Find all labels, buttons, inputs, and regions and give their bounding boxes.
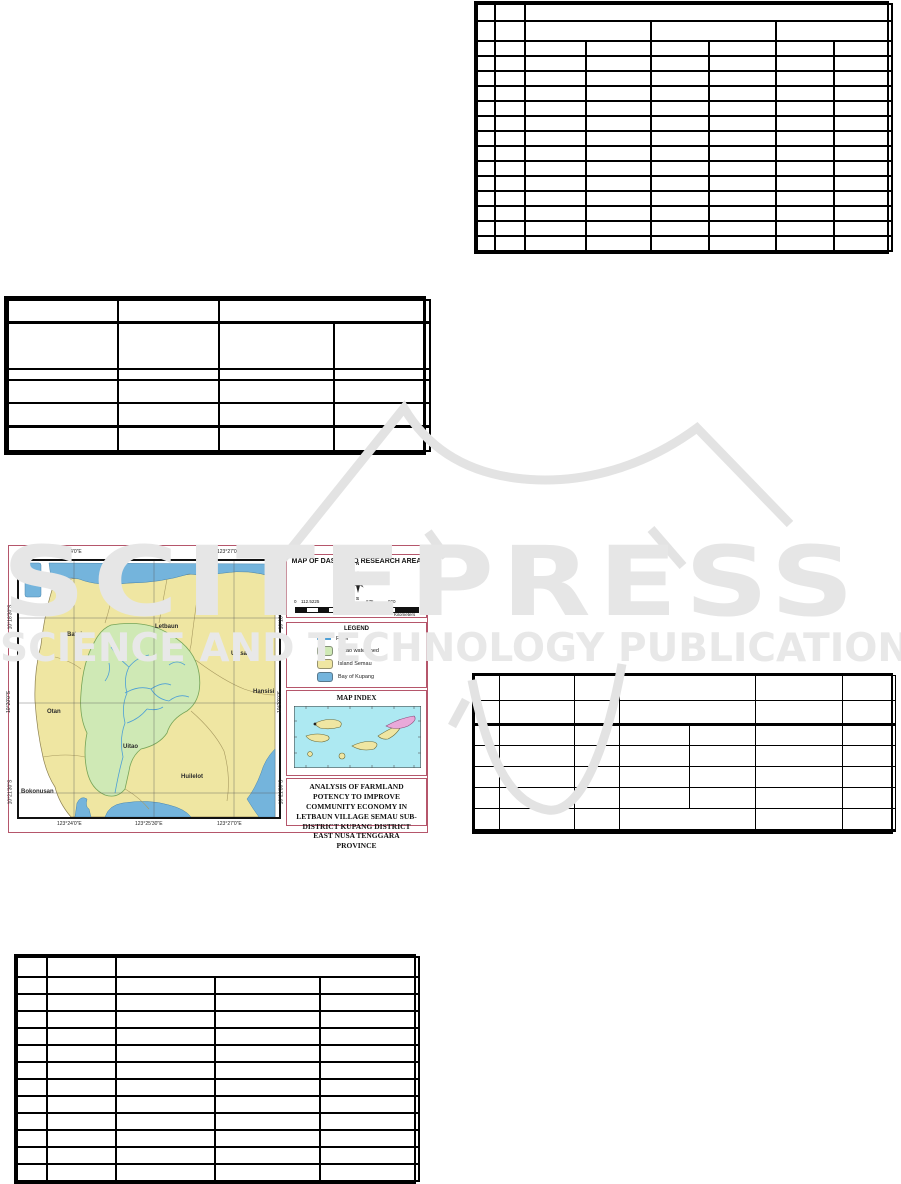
scale-label: 450	[343, 599, 351, 604]
empty-cell	[215, 1045, 320, 1062]
empty-cell	[116, 957, 419, 977]
empty-cell	[17, 1011, 47, 1028]
legend-label: River	[336, 636, 349, 642]
empty-cell	[475, 725, 500, 746]
empty-cell	[525, 116, 586, 131]
empty-cell	[709, 176, 776, 191]
empty-cell	[586, 56, 651, 71]
map-index-panel: MAP INDEX	[286, 690, 427, 776]
empty-cell	[215, 977, 320, 994]
empty-cell	[320, 994, 419, 1011]
empty-cell	[776, 71, 834, 86]
empty-cell	[651, 176, 709, 191]
empty-cell	[219, 300, 430, 322]
empty-cell	[776, 146, 834, 161]
empty-cell	[47, 1079, 116, 1096]
empty-cell	[118, 369, 219, 380]
empty-cell	[651, 71, 709, 86]
empty-cell	[620, 676, 756, 701]
empty-cell	[709, 191, 776, 206]
lon-label-bottom: 123°27'0"E	[217, 821, 242, 827]
lon-label-bottom: 123°25'30"E	[135, 821, 163, 827]
empty-cell	[834, 191, 892, 206]
empty-cell	[320, 1079, 419, 1096]
legend-item-river: River	[317, 635, 426, 643]
empty-cell	[477, 146, 495, 161]
compass-e: E	[373, 579, 376, 584]
empty-cell	[525, 4, 892, 21]
empty-cell	[620, 767, 690, 788]
scale-label: 112.5225	[301, 599, 319, 604]
empty-cell	[477, 71, 495, 86]
bay-west-patch	[25, 563, 41, 597]
empty-cell	[776, 41, 834, 56]
empty-cell	[525, 71, 586, 86]
legend-label: Island Semau	[338, 661, 372, 667]
empty-cell	[690, 788, 756, 809]
empty-cell	[525, 41, 586, 56]
scale-unit: Kilometers	[394, 612, 415, 617]
empty-cell	[215, 1079, 320, 1096]
empty-cell	[525, 176, 586, 191]
empty-cell	[116, 1045, 215, 1062]
empty-cell	[116, 1130, 215, 1147]
empty-cell	[17, 977, 47, 994]
empty-cell	[219, 426, 334, 451]
empty-cell	[47, 994, 116, 1011]
empty-cell	[17, 1079, 47, 1096]
empty-cell	[215, 1147, 320, 1164]
figure-caption-panel: ANALYSIS OF FARMLAND POTENCY TO IMPROVE …	[286, 778, 427, 826]
empty-cell	[215, 994, 320, 1011]
empty-cell	[575, 788, 620, 809]
empty-cell	[215, 1130, 320, 1147]
empty-cell	[651, 86, 709, 101]
empty-cell	[334, 322, 430, 369]
empty-cell	[320, 1062, 419, 1079]
empty-cell	[586, 41, 651, 56]
empty-cell	[620, 809, 756, 831]
empty-cell	[116, 1079, 215, 1096]
empty-cell	[320, 1113, 419, 1130]
empty-cell	[475, 701, 500, 725]
empty-cell	[17, 957, 47, 977]
empty-cell	[495, 206, 525, 221]
empty-cell	[475, 809, 500, 831]
legend-panel: LEGEND River Ulitao watershed Island Sem…	[286, 622, 427, 688]
paper-page: { "watermark": { "title": "SCITEPRESS", …	[0, 0, 901, 1178]
empty-cell	[586, 161, 651, 176]
legend-item-watershed: Ulitao watershed	[317, 646, 426, 656]
scale-label: 0	[294, 599, 297, 604]
empty-cell	[495, 161, 525, 176]
empty-cell	[475, 767, 500, 788]
map-index-drawing	[294, 706, 421, 768]
empty-cell	[651, 41, 709, 56]
empty-cell	[219, 322, 334, 369]
empty-cell	[495, 41, 525, 56]
lat-label-left: 10°20'0"S	[6, 691, 12, 713]
empty-cell	[475, 676, 500, 701]
empty-cell	[320, 1096, 419, 1113]
empty-cell	[709, 206, 776, 221]
empty-cell	[495, 56, 525, 71]
empty-cell	[477, 101, 495, 116]
empty-cell	[500, 788, 575, 809]
empty-cell	[477, 191, 495, 206]
empty-cell	[8, 380, 118, 403]
island-swatch	[317, 659, 333, 669]
empty-cell	[215, 1164, 320, 1181]
empty-cell	[118, 322, 219, 369]
table-bottom-left	[14, 954, 416, 1184]
empty-cell	[756, 701, 843, 725]
empty-cell	[334, 426, 430, 451]
empty-cell	[8, 322, 118, 369]
empty-cell	[756, 809, 843, 831]
empty-cell	[525, 191, 586, 206]
empty-cell	[500, 676, 575, 701]
empty-cell	[651, 21, 776, 41]
empty-cell	[477, 21, 495, 41]
empty-cell	[709, 56, 776, 71]
empty-cell	[575, 767, 620, 788]
empty-cell	[651, 206, 709, 221]
empty-cell	[215, 1113, 320, 1130]
empty-cell	[215, 1096, 320, 1113]
empty-cell	[834, 206, 892, 221]
empty-cell	[495, 21, 525, 41]
place-label: Bokonusan	[21, 789, 54, 795]
empty-cell	[709, 101, 776, 116]
empty-cell	[500, 767, 575, 788]
empty-cell	[47, 957, 116, 977]
empty-cell	[651, 131, 709, 146]
empty-cell	[776, 221, 834, 236]
lat-label-right: 10°20'0"S	[277, 691, 283, 713]
empty-cell	[756, 767, 843, 788]
empty-cell	[834, 146, 892, 161]
empty-cell	[586, 221, 651, 236]
empty-cell	[320, 1164, 419, 1181]
lat-label-left: 10°18'30"S	[7, 605, 13, 630]
empty-cell	[756, 788, 843, 809]
place-label: Huilelot	[181, 774, 203, 780]
empty-cell	[690, 746, 756, 767]
empty-cell	[8, 426, 118, 451]
empty-cell	[334, 369, 430, 380]
empty-cell	[709, 41, 776, 56]
empty-cell	[776, 206, 834, 221]
place-label: Letbaun	[155, 624, 178, 630]
empty-cell	[47, 1011, 116, 1028]
empty-cell	[334, 380, 430, 403]
empty-cell	[586, 86, 651, 101]
empty-cell	[495, 86, 525, 101]
legend-label: Ulitao watershed	[338, 648, 379, 654]
empty-cell	[116, 1062, 215, 1079]
empty-cell	[116, 1147, 215, 1164]
empty-cell	[47, 1045, 116, 1062]
empty-cell	[709, 116, 776, 131]
empty-cell	[651, 221, 709, 236]
empty-cell	[834, 116, 892, 131]
empty-cell	[776, 131, 834, 146]
bay-swatch	[317, 672, 333, 682]
empty-cell	[709, 236, 776, 251]
lon-label-top: 123°24'0"E	[57, 549, 82, 555]
empty-cell	[118, 403, 219, 426]
legend-item-island: Island Semau	[317, 659, 426, 669]
empty-cell	[500, 701, 575, 725]
empty-cell	[756, 725, 843, 746]
empty-cell	[834, 101, 892, 116]
empty-cell	[17, 1147, 47, 1164]
main-map-drawing	[19, 561, 279, 817]
empty-cell	[843, 809, 896, 831]
empty-cell	[843, 725, 896, 746]
empty-cell	[834, 161, 892, 176]
empty-cell	[575, 725, 620, 746]
empty-cell	[776, 86, 834, 101]
empty-cell	[495, 176, 525, 191]
empty-cell	[320, 1028, 419, 1045]
empty-cell	[525, 21, 651, 41]
lon-label-bottom: 123°24'0"E	[57, 821, 82, 827]
empty-cell	[651, 236, 709, 251]
empty-cell	[495, 116, 525, 131]
empty-cell	[219, 369, 334, 380]
empty-cell	[834, 56, 892, 71]
empty-cell	[525, 86, 586, 101]
empty-cell	[776, 116, 834, 131]
empty-cell	[118, 380, 219, 403]
empty-cell	[495, 4, 525, 21]
watershed-swatch	[317, 646, 333, 656]
empty-cell	[586, 176, 651, 191]
empty-cell	[17, 1096, 47, 1113]
compass-n: N	[356, 561, 359, 566]
map-index-title: MAP INDEX	[287, 691, 426, 702]
compass-w: W	[338, 579, 342, 584]
empty-cell	[215, 1028, 320, 1045]
empty-cell	[118, 300, 219, 322]
empty-cell	[586, 146, 651, 161]
empty-cell	[477, 161, 495, 176]
empty-cell	[525, 161, 586, 176]
table-top-right	[474, 1, 889, 254]
empty-cell	[477, 116, 495, 131]
empty-cell	[334, 403, 430, 426]
empty-cell	[495, 236, 525, 251]
place-label: Otan	[47, 709, 61, 715]
empty-cell	[320, 1045, 419, 1062]
empty-cell	[776, 161, 834, 176]
empty-cell	[651, 191, 709, 206]
empty-cell	[586, 131, 651, 146]
empty-cell	[776, 56, 834, 71]
empty-cell	[843, 767, 896, 788]
river-swatch	[317, 635, 331, 643]
empty-cell	[575, 809, 620, 831]
empty-cell	[834, 86, 892, 101]
place-label: Uitao	[123, 744, 138, 750]
place-label: Batuinan	[67, 632, 93, 638]
empty-cell	[477, 56, 495, 71]
empty-cell	[320, 1147, 419, 1164]
empty-cell	[709, 131, 776, 146]
empty-cell	[477, 131, 495, 146]
empty-cell	[116, 1028, 215, 1045]
empty-cell	[651, 101, 709, 116]
empty-cell	[575, 701, 620, 725]
place-label: Hansisi	[253, 689, 274, 695]
empty-cell	[776, 236, 834, 251]
map-figure: Letbaun Batuinan Uiasa Hansisi Otan Uita…	[8, 545, 428, 833]
empty-cell	[776, 176, 834, 191]
place-label: Uiasa	[231, 651, 247, 657]
empty-cell	[47, 977, 116, 994]
empty-cell	[756, 676, 843, 701]
empty-cell	[477, 41, 495, 56]
empty-cell	[525, 146, 586, 161]
empty-cell	[495, 221, 525, 236]
empty-cell	[495, 191, 525, 206]
empty-cell	[47, 1028, 116, 1045]
empty-cell	[834, 41, 892, 56]
empty-cell	[776, 21, 892, 41]
empty-cell	[47, 1147, 116, 1164]
empty-cell	[525, 206, 586, 221]
empty-cell	[620, 725, 690, 746]
empty-cell	[17, 1113, 47, 1130]
empty-cell	[500, 746, 575, 767]
empty-cell	[651, 161, 709, 176]
figure-caption: ANALYSIS OF FARMLAND POTENCY TO IMPROVE …	[287, 779, 426, 854]
empty-cell	[17, 1062, 47, 1079]
empty-cell	[525, 221, 586, 236]
empty-cell	[709, 71, 776, 86]
map-title-panel: MAP OF DAS UITAO RESEARCH AREA N E	[286, 554, 427, 618]
empty-cell	[525, 131, 586, 146]
empty-cell	[495, 146, 525, 161]
empty-cell	[586, 116, 651, 131]
empty-cell	[320, 977, 419, 994]
empty-cell	[219, 403, 334, 426]
empty-cell	[477, 4, 495, 21]
empty-cell	[477, 236, 495, 251]
empty-cell	[116, 1096, 215, 1113]
compass-s: S	[356, 596, 359, 601]
lat-label-left: 10°21'30"S	[7, 780, 13, 805]
legend-title: LEGEND	[287, 623, 426, 632]
empty-cell	[116, 1113, 215, 1130]
empty-cell	[709, 221, 776, 236]
empty-cell	[47, 1113, 116, 1130]
empty-cell	[215, 1062, 320, 1079]
empty-cell	[756, 746, 843, 767]
empty-cell	[500, 809, 575, 831]
empty-cell	[834, 176, 892, 191]
empty-cell	[47, 1062, 116, 1079]
empty-cell	[525, 56, 586, 71]
empty-cell	[843, 676, 896, 701]
lat-label-right: 10°18'30"S	[278, 605, 284, 630]
empty-cell	[620, 746, 690, 767]
scale-label: 675	[366, 599, 374, 604]
empty-cell	[17, 1045, 47, 1062]
empty-cell	[843, 746, 896, 767]
empty-cell	[17, 994, 47, 1011]
empty-cell	[586, 236, 651, 251]
empty-cell	[620, 701, 756, 725]
empty-cell	[834, 236, 892, 251]
empty-cell	[47, 1164, 116, 1181]
empty-cell	[525, 101, 586, 116]
empty-cell	[620, 788, 690, 809]
empty-cell	[690, 767, 756, 788]
empty-cell	[477, 86, 495, 101]
lon-label-top: 123°25'30"E	[135, 549, 163, 555]
empty-cell	[495, 101, 525, 116]
empty-cell	[116, 1011, 215, 1028]
empty-cell	[8, 403, 118, 426]
empty-cell	[17, 1164, 47, 1181]
empty-cell	[834, 131, 892, 146]
empty-cell	[651, 116, 709, 131]
empty-cell	[575, 746, 620, 767]
empty-cell	[8, 369, 118, 380]
empty-cell	[709, 86, 776, 101]
empty-cell	[17, 1028, 47, 1045]
empty-cell	[843, 788, 896, 809]
empty-cell	[709, 146, 776, 161]
empty-cell	[586, 191, 651, 206]
legend-item-bay: Bay of Kupang	[317, 672, 426, 682]
empty-cell	[320, 1011, 419, 1028]
empty-cell	[17, 1130, 47, 1147]
empty-cell	[500, 725, 575, 746]
empty-cell	[8, 300, 118, 322]
empty-cell	[651, 56, 709, 71]
legend-label: Bay of Kupang	[338, 674, 374, 680]
empty-cell	[495, 71, 525, 86]
empty-cell	[116, 977, 215, 994]
empty-cell	[776, 101, 834, 116]
lat-label-right: 10°21'30"S	[278, 780, 284, 805]
empty-cell	[477, 176, 495, 191]
lon-label-top: 123°27'0"E	[217, 549, 242, 555]
empty-cell	[47, 1130, 116, 1147]
scale-label: 900	[388, 599, 396, 604]
empty-cell	[47, 1096, 116, 1113]
empty-cell	[219, 380, 334, 403]
empty-cell	[709, 161, 776, 176]
empty-cell	[475, 746, 500, 767]
empty-cell	[651, 146, 709, 161]
empty-cell	[320, 1130, 419, 1147]
empty-cell	[834, 221, 892, 236]
empty-cell	[586, 71, 651, 86]
empty-cell	[834, 71, 892, 86]
empty-cell	[690, 725, 756, 746]
empty-cell	[477, 206, 495, 221]
empty-cell	[575, 676, 620, 701]
empty-cell	[477, 221, 495, 236]
empty-cell	[475, 788, 500, 809]
empty-cell	[118, 426, 219, 451]
empty-cell	[586, 101, 651, 116]
